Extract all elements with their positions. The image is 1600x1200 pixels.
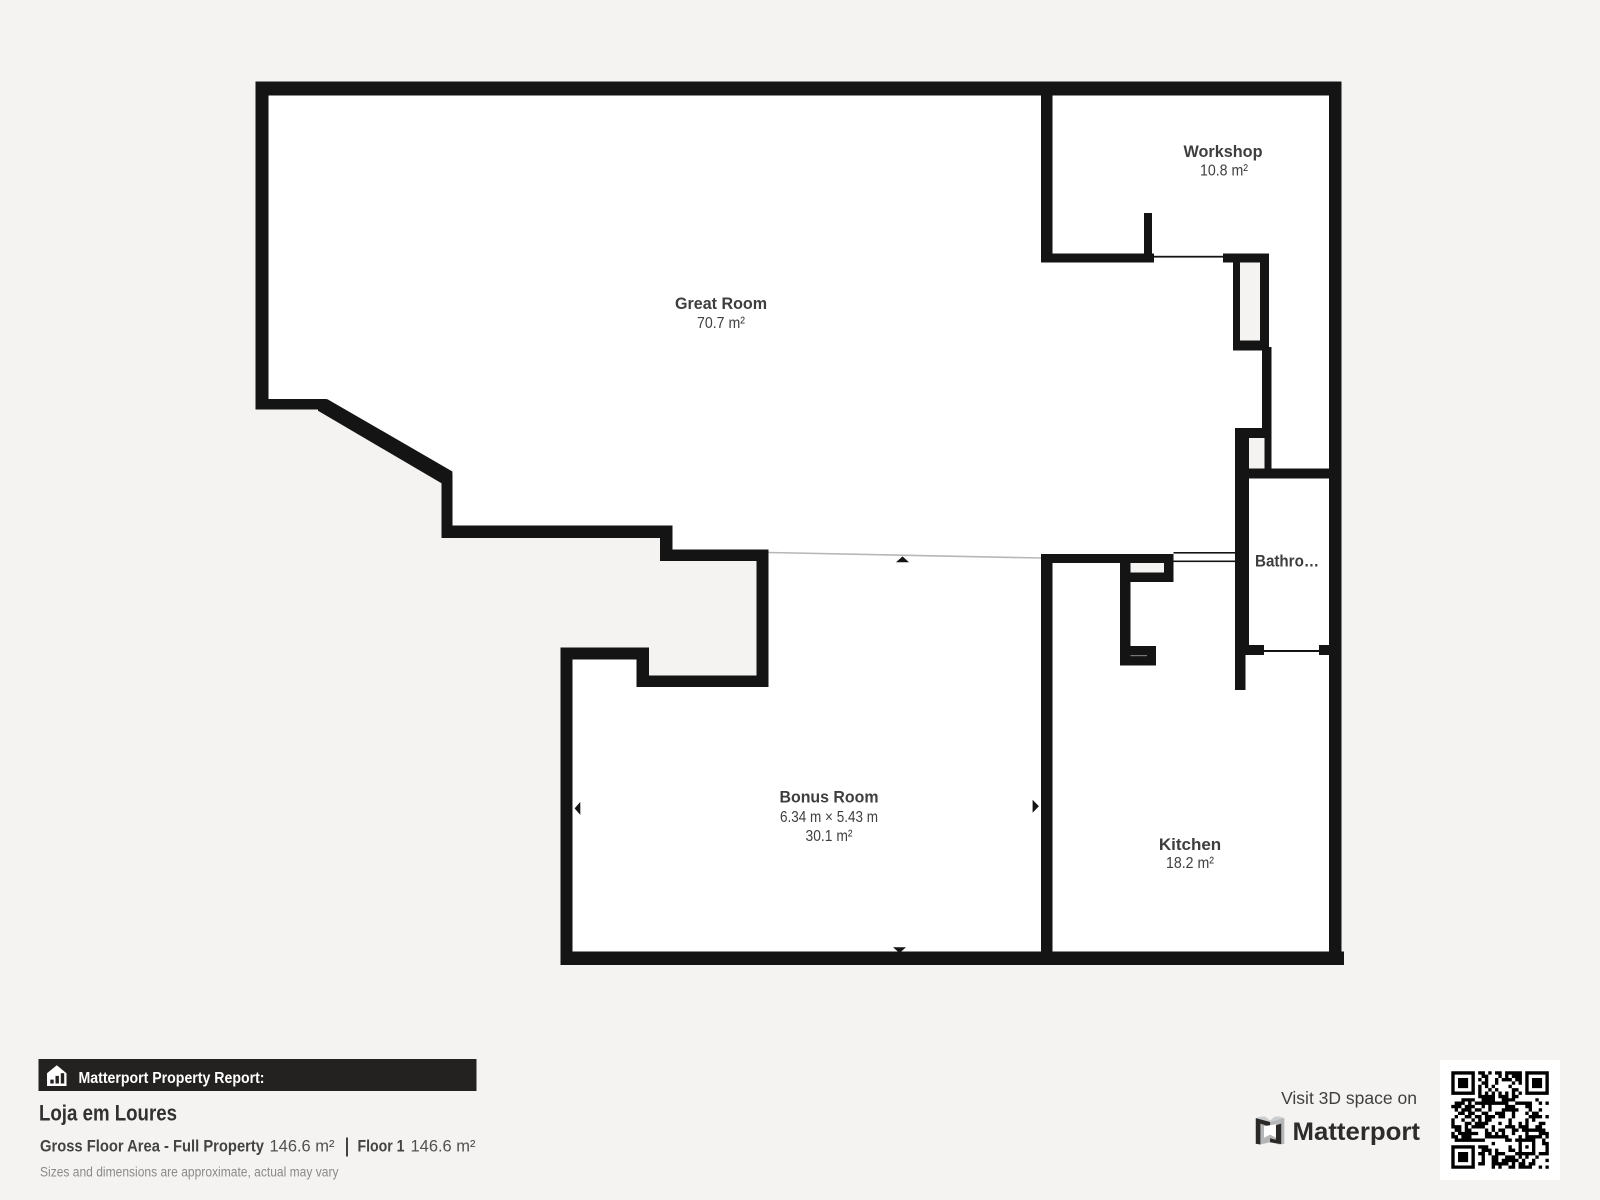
svg-text:Sizes and dimensions are appro: Sizes and dimensions are approximate, ac… (40, 1165, 339, 1180)
svg-text:Great Room: Great Room (675, 294, 767, 313)
svg-text:6.34 m × 5.43 m: 6.34 m × 5.43 m (780, 809, 878, 826)
svg-text:30.1 m²: 30.1 m² (806, 828, 854, 845)
svg-text:Floor 1: Floor 1 (358, 1138, 405, 1156)
svg-text:Matterport: Matterport (1293, 1118, 1421, 1146)
svg-text:70.7 m²: 70.7 m² (697, 315, 746, 332)
svg-text:Workshop: Workshop (1184, 142, 1263, 161)
svg-text:18.2 m²: 18.2 m² (1166, 855, 1215, 872)
svg-text:Loja em Loures: Loja em Loures (39, 1101, 177, 1126)
svg-text:Kitchen: Kitchen (1159, 835, 1221, 854)
svg-text:Bonus Room: Bonus Room (780, 788, 879, 807)
svg-text:Bathro…: Bathro… (1255, 552, 1319, 571)
svg-text:10.8 m²: 10.8 m² (1200, 163, 1249, 180)
svg-text:Matterport Property Report:: Matterport Property Report: (79, 1070, 265, 1087)
svg-text:146.6 m²: 146.6 m² (270, 1138, 335, 1156)
svg-text:Visit 3D space on: Visit 3D space on (1281, 1088, 1417, 1108)
svg-text:146.6 m²: 146.6 m² (411, 1138, 476, 1156)
svg-text:Gross Floor Area - Full Proper: Gross Floor Area - Full Property (40, 1138, 265, 1156)
